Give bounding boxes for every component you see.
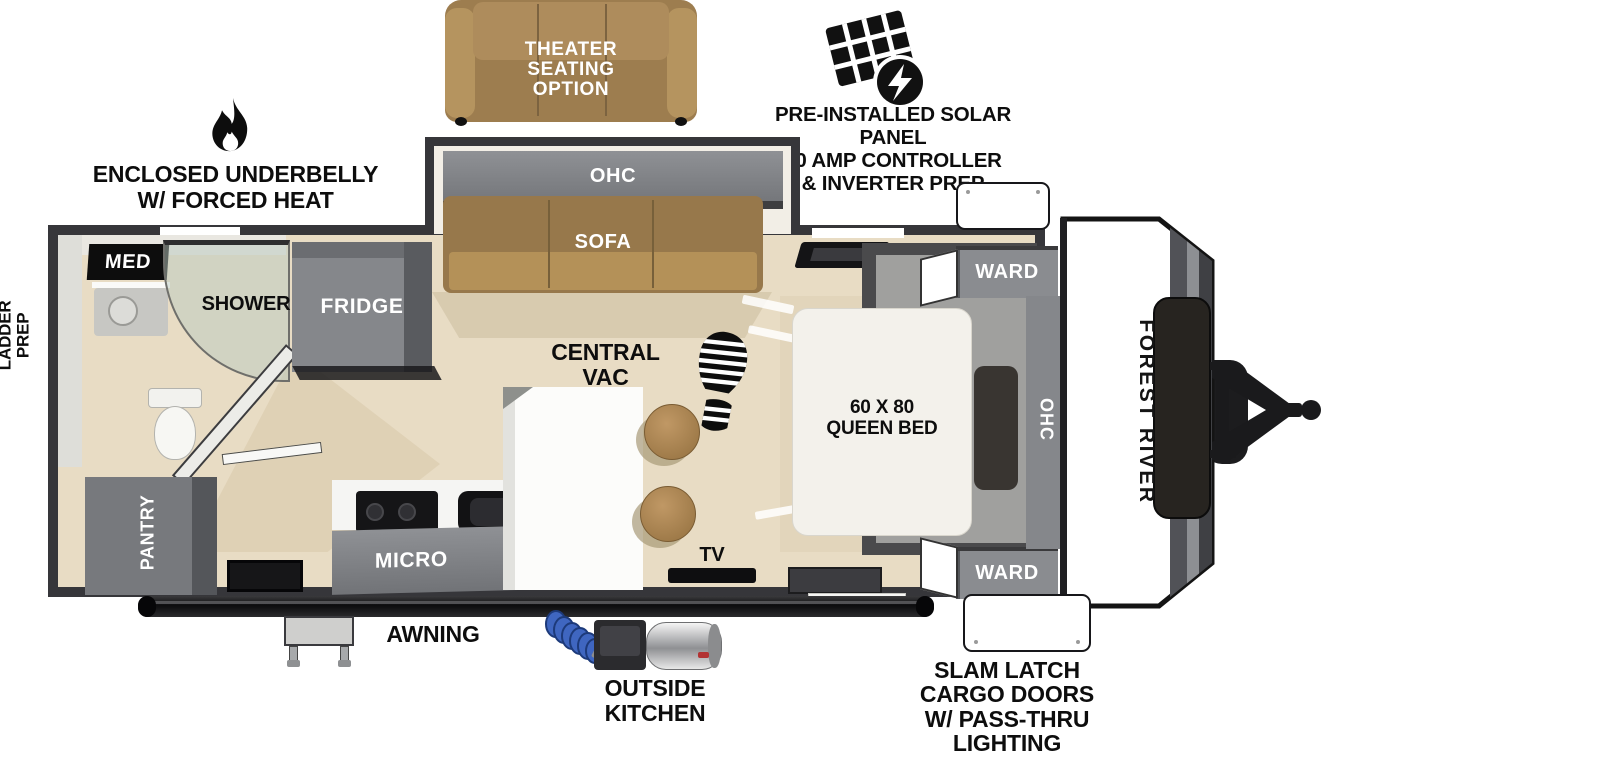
queen-bed-label: 60 X 80 QUEEN BED bbox=[800, 398, 964, 439]
outside-kitchen-unit-panel bbox=[600, 626, 640, 656]
tank-end-ring bbox=[708, 624, 721, 668]
sofa-label: SOFA bbox=[518, 232, 688, 253]
pantry-side bbox=[192, 477, 217, 595]
bedroom-window bbox=[920, 249, 958, 306]
refrigerator-shadow bbox=[292, 366, 441, 380]
awning-label: AWNING bbox=[368, 622, 498, 647]
sofa-seat-cushions bbox=[449, 252, 757, 290]
outside-kitchen-label: OUTSIDE KITCHEN bbox=[580, 676, 730, 726]
screw bbox=[974, 640, 978, 644]
flame-icon bbox=[207, 98, 259, 160]
awning-end-cap bbox=[916, 596, 934, 617]
kitchen-island-edge bbox=[503, 387, 515, 590]
bootprint-icon bbox=[677, 326, 766, 442]
bed-pillow bbox=[974, 366, 1018, 490]
ward-bottom-label: WARD bbox=[975, 563, 1039, 584]
toilet-tank bbox=[148, 388, 202, 408]
tv bbox=[668, 568, 756, 583]
tv-label: TV bbox=[686, 545, 738, 567]
underbelly-note: ENCLOSED UNDERBELLY W/ FORCED HEAT bbox=[78, 162, 393, 214]
screw bbox=[1036, 190, 1040, 194]
slide-ohc-label: OHC bbox=[590, 166, 636, 187]
theater-couch-foot bbox=[675, 117, 687, 126]
theater-couch-arm-right bbox=[667, 8, 697, 118]
bathroom-wall bbox=[58, 235, 82, 467]
fridge-label: FRIDGE bbox=[321, 296, 404, 318]
ladder-prep-note: LADDER PREP bbox=[0, 280, 33, 390]
window bbox=[812, 228, 904, 238]
entry-door bbox=[788, 567, 882, 594]
screw bbox=[966, 190, 970, 194]
burner bbox=[398, 503, 416, 521]
theater-seating-option: THEATER SEATING OPTION bbox=[445, 0, 697, 128]
awning-highlight bbox=[152, 601, 920, 604]
shower-label: SHOWER bbox=[186, 294, 306, 316]
medicine-cabinet: MED bbox=[87, 244, 170, 280]
med-label: MED bbox=[104, 252, 152, 273]
screw bbox=[1076, 640, 1080, 644]
tank-valve bbox=[698, 652, 709, 658]
theater-seating-label: THEATER SEATING OPTION bbox=[471, 40, 671, 100]
awning-end-cap bbox=[138, 596, 156, 617]
stool bbox=[640, 486, 696, 542]
theater-couch-foot bbox=[455, 117, 467, 126]
micro-label: MICRO bbox=[375, 549, 448, 573]
bedroom-window bbox=[920, 537, 958, 598]
bathroom-sink bbox=[108, 296, 138, 326]
entry-steps bbox=[284, 616, 354, 646]
step-foot bbox=[338, 660, 351, 667]
slideout-overhead-cabinet: OHC bbox=[443, 151, 783, 201]
kitchen-island bbox=[503, 387, 643, 590]
step-foot bbox=[287, 660, 300, 667]
cargo-door-bottom bbox=[963, 594, 1091, 652]
brand-label: FOREST RIVER bbox=[1135, 319, 1158, 504]
rock-guard bbox=[1154, 298, 1210, 518]
entry-step-well bbox=[227, 560, 303, 592]
pantry-label: PANTRY bbox=[139, 482, 158, 582]
slam-latch-label: SLAM LATCH CARGO DOORS W/ PASS-THRU LIGH… bbox=[912, 658, 1102, 756]
rv-floorplan-diagram: THEATER SEATING OPTION PRE-INSTALLED SOL… bbox=[0, 0, 1600, 765]
burner bbox=[366, 503, 384, 521]
solar-panel-icon bbox=[812, 2, 937, 114]
toilet bbox=[154, 406, 196, 460]
hitch-a-frame bbox=[1210, 360, 1321, 460]
cargo-door-top bbox=[956, 182, 1050, 230]
refrigerator-side bbox=[404, 242, 432, 372]
ward-top-label: WARD bbox=[975, 262, 1039, 283]
front-cap: FOREST RIVER bbox=[1040, 210, 1325, 618]
awning-roller bbox=[138, 596, 934, 617]
central-vac-label: CENTRAL VAC bbox=[528, 340, 683, 390]
